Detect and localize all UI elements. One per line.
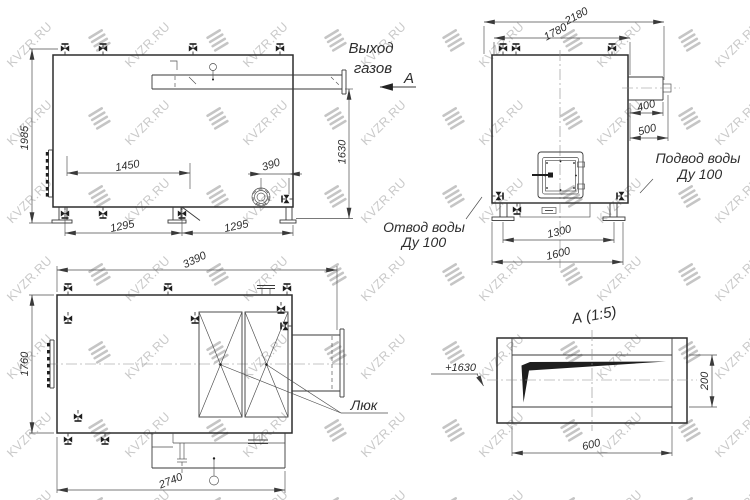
section-arrow-label: А bbox=[403, 70, 414, 87]
dim-1985: 1985 bbox=[19, 125, 31, 150]
technical-drawing-page: KVZR.RU bbox=[0, 0, 750, 500]
gas-outlet-label-line2: газов bbox=[354, 60, 392, 77]
boiler-drawing-canvas: KVZR.RU bbox=[0, 0, 750, 500]
dim-200: 200 bbox=[699, 371, 711, 391]
gas-outlet-label-line1: Выход bbox=[348, 40, 393, 57]
water-return-label-line1: Отвод воды bbox=[383, 219, 465, 235]
water-return-label-line2: Ду 100 bbox=[400, 234, 446, 250]
hatch-label: Люк bbox=[350, 397, 379, 413]
water-supply-label-line2: Ду 100 bbox=[676, 166, 722, 182]
water-supply-label-line1: Подвод воды bbox=[656, 150, 742, 166]
dim-1760: 1760 bbox=[19, 351, 31, 376]
dim-1630: 1630 bbox=[337, 139, 349, 164]
level-mark: +1630 bbox=[445, 362, 477, 374]
